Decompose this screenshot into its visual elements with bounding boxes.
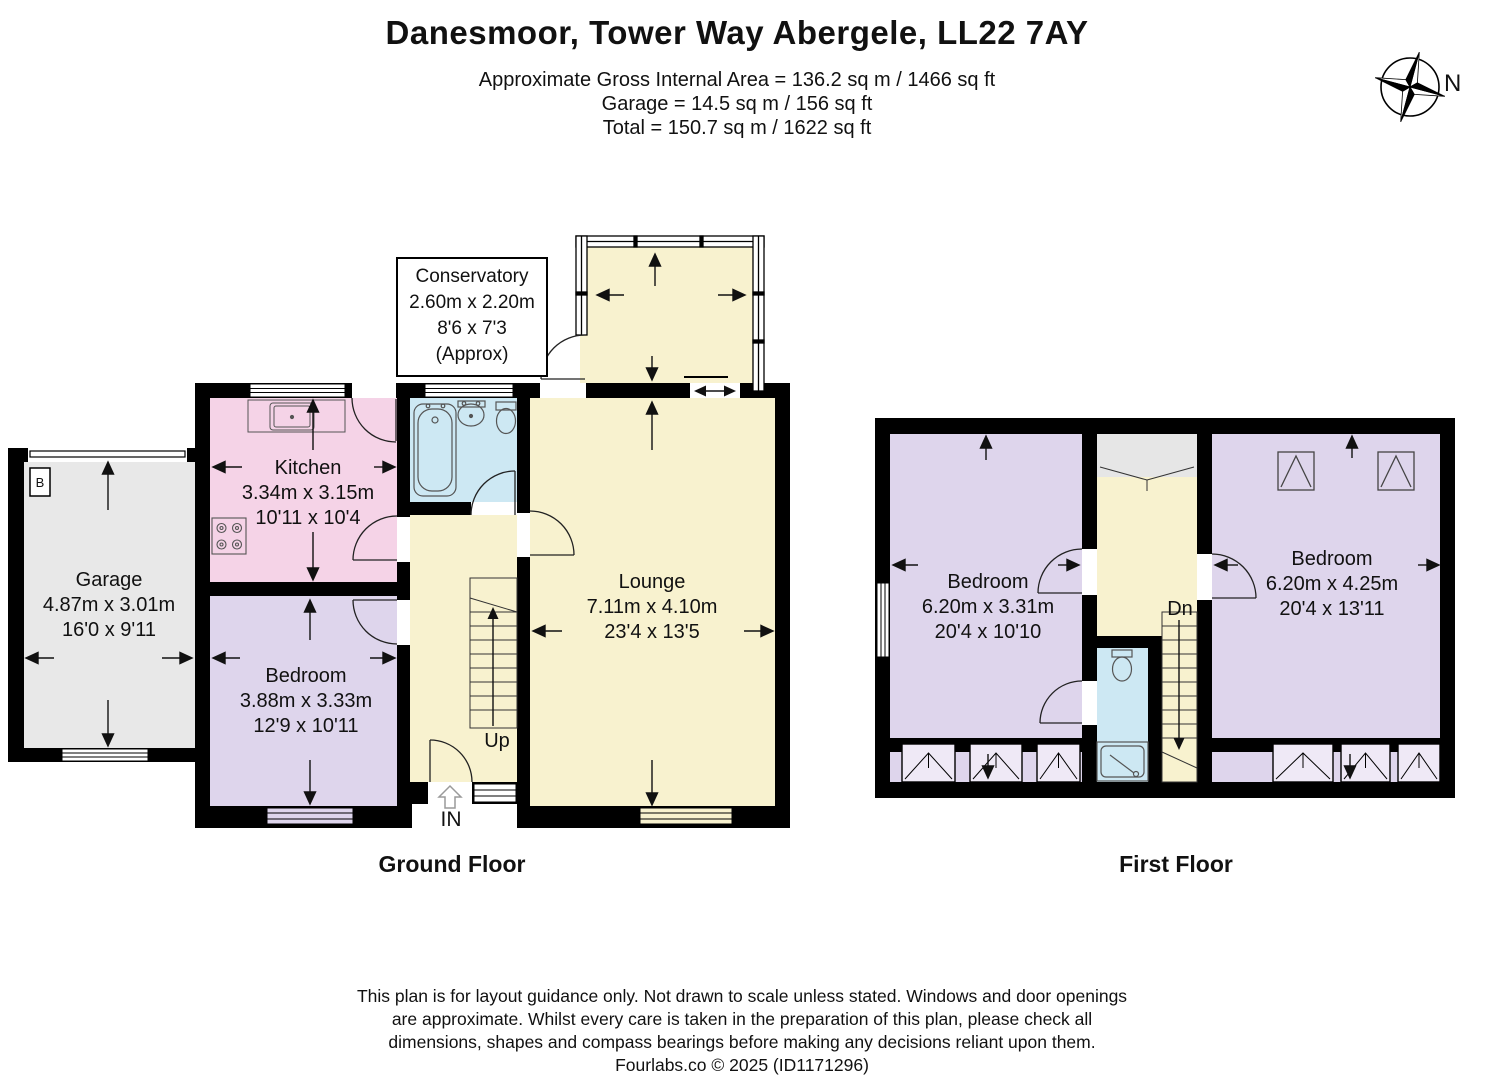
- garage-area: Garage = 14.5 sq m / 156 sq ft: [602, 93, 873, 116]
- gross-internal-area: Approximate Gross Internal Area = 136.2 …: [479, 69, 995, 92]
- first-floor-title: First Floor: [1119, 851, 1233, 878]
- garage-door: [28, 448, 187, 462]
- entrance-window: [474, 784, 516, 802]
- room-dims-metric: 6.20m x 4.25m: [1266, 572, 1398, 597]
- room-dims-imperial: 20'4 x 13'11: [1266, 597, 1398, 622]
- garage-label: Garage 4.87m x 3.01m 16'0 x 9'11: [43, 568, 175, 643]
- room-name: Garage: [43, 568, 175, 593]
- room-dims-metric: 6.20m x 3.31m: [922, 595, 1054, 620]
- conservatory-label-box: Conservatory 2.60m x 2.20m 8'6 x 7'3 (Ap…: [396, 257, 548, 377]
- room-note: (Approx): [398, 342, 546, 368]
- copyright-line: Fourlabs.co © 2025 (ID1171296): [615, 1055, 869, 1076]
- first-bedroom-right-label: Bedroom 6.20m x 4.25m 20'4 x 13'11: [1266, 547, 1398, 622]
- dormer-bay: [970, 744, 1022, 782]
- dormer-bay: [1273, 744, 1333, 782]
- compass-rose: [1375, 52, 1445, 122]
- room-name: Bedroom: [922, 570, 1054, 595]
- ground-bedroom-label: Bedroom 3.88m x 3.33m 12'9 x 10'11: [240, 664, 372, 739]
- bathroom-room: [410, 398, 517, 502]
- bedroom-window: [267, 808, 353, 824]
- first-bedroom-left-window: [877, 583, 889, 657]
- conservatory-room: [580, 240, 754, 383]
- disclaimer-line-1: This plan is for layout guidance only. N…: [357, 986, 1127, 1007]
- room-name: Bedroom: [1266, 547, 1398, 572]
- room-dims-imperial: 23'4 x 13'5: [587, 620, 718, 645]
- floor-plan-drawing: [0, 0, 1492, 1080]
- ground-floor-title: Ground Floor: [379, 851, 526, 878]
- dormer-bay: [1398, 744, 1440, 782]
- dormer-bay: [902, 744, 955, 782]
- kitchen-window: [250, 384, 345, 397]
- room-dims-metric: 3.34m x 3.15m: [242, 481, 374, 506]
- room-name: Kitchen: [242, 456, 374, 481]
- compass-star: [1375, 52, 1445, 122]
- dormer-bay: [1341, 744, 1390, 782]
- kitchen-label: Kitchen 3.34m x 3.15m 10'11 x 10'4: [242, 456, 374, 531]
- first-bathroom-room: [1097, 648, 1148, 782]
- room-dims-metric: 3.88m x 3.33m: [240, 689, 372, 714]
- room-dims-metric: 2.60m x 2.20m: [398, 290, 546, 316]
- bathroom-window: [425, 384, 513, 397]
- room-dims-imperial: 8'6 x 7'3: [398, 316, 546, 342]
- room-name: Conservatory: [398, 264, 546, 290]
- stairs-down-label: Dn: [1167, 598, 1193, 621]
- lounge-window: [640, 808, 732, 824]
- room-name: Bedroom: [240, 664, 372, 689]
- disclaimer-line-2: are approximate. Whilst every care is ta…: [392, 1009, 1092, 1030]
- entrance-label: IN: [441, 808, 462, 832]
- room-dims-metric: 4.87m x 3.01m: [43, 593, 175, 618]
- lounge-label: Lounge 7.11m x 4.10m 23'4 x 13'5: [587, 570, 718, 645]
- page-title: Danesmoor, Tower Way Abergele, LL22 7AY: [386, 14, 1089, 52]
- boiler-label: B: [36, 475, 45, 490]
- garage-window: [62, 749, 148, 761]
- total-area: Total = 150.7 sq m / 1622 sq ft: [603, 117, 872, 140]
- stairs-up-label: Up: [484, 730, 510, 753]
- room-dims-metric: 7.11m x 4.10m: [587, 595, 718, 620]
- room-dims-imperial: 16'0 x 9'11: [43, 618, 175, 643]
- disclaimer-line-3: dimensions, shapes and compass bearings …: [388, 1032, 1095, 1053]
- compass-north-label: N: [1444, 70, 1461, 98]
- dormer-bay: [1037, 744, 1080, 782]
- room-dims-imperial: 10'11 x 10'4: [242, 506, 374, 531]
- room-dims-imperial: 20'4 x 10'10: [922, 620, 1054, 645]
- room-name: Lounge: [587, 570, 718, 595]
- first-bedroom-left-label: Bedroom 6.20m x 3.31m 20'4 x 10'10: [922, 570, 1054, 645]
- room-dims-imperial: 12'9 x 10'11: [240, 714, 372, 739]
